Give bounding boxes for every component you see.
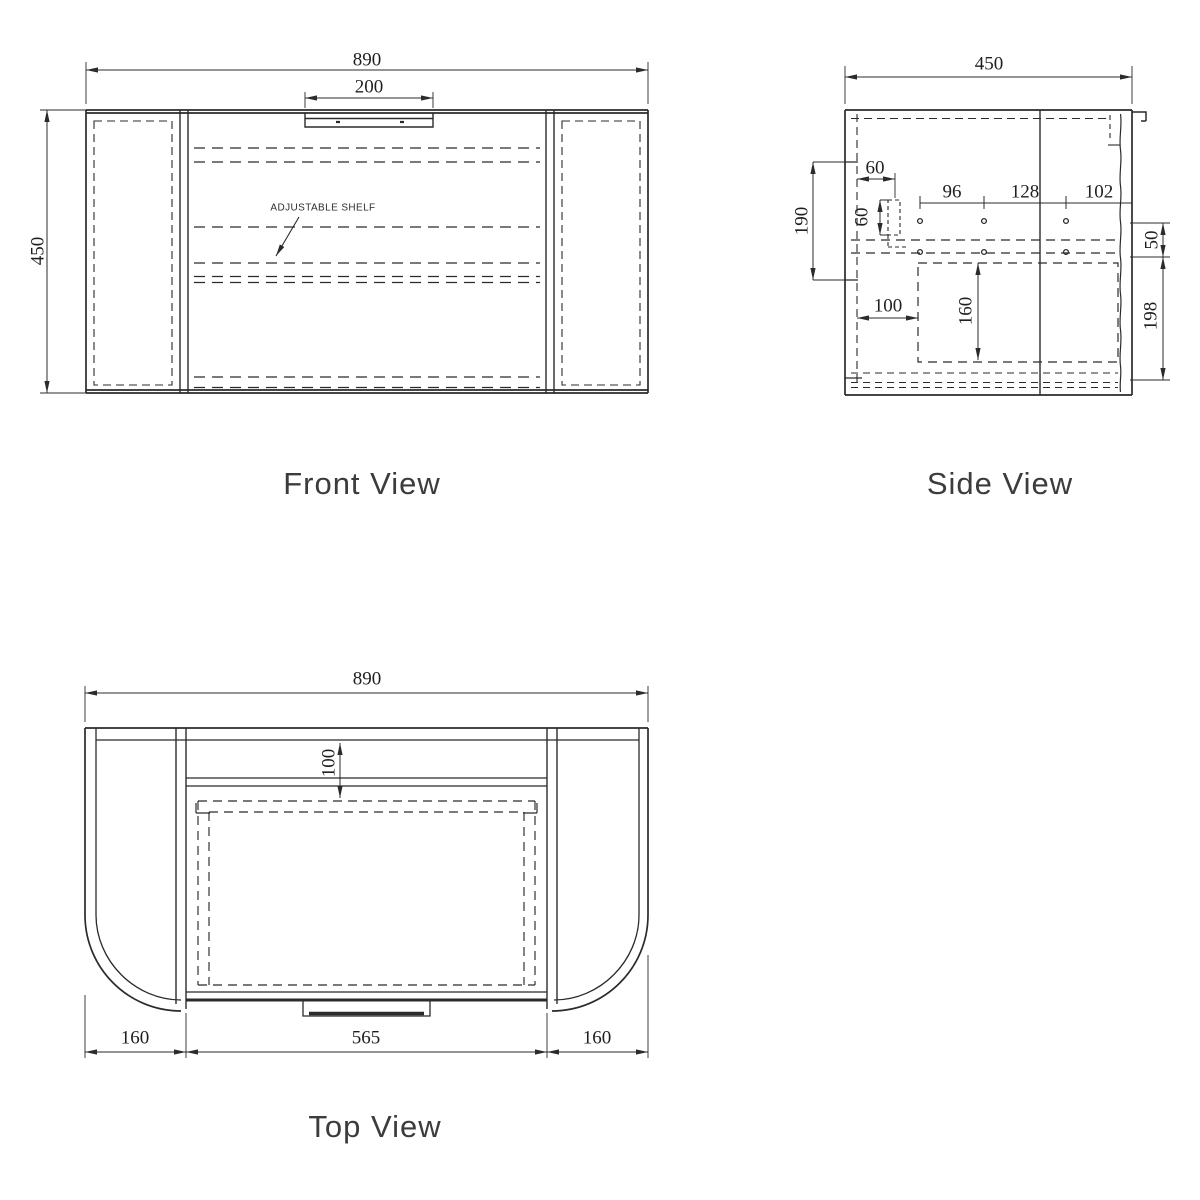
- front-view-linework: [40, 62, 648, 393]
- dim-side-overall-depth: 450: [975, 55, 1004, 74]
- dim-side-hinge-offset-v: 60: [853, 208, 872, 227]
- dim-top-overall-width: 890: [353, 670, 382, 689]
- top-view-linework: [85, 686, 648, 1058]
- dim-side-lower-gap-198: 198: [1142, 302, 1161, 331]
- drawing-canvas: [0, 0, 1200, 1200]
- top-view-title: Top View: [308, 1109, 441, 1145]
- side-view-title: Side View: [927, 466, 1073, 502]
- dim-side-hole-pitch-102: 102: [1085, 183, 1114, 202]
- dim-side-drawer-inset-100: 100: [874, 297, 903, 316]
- dim-side-row-gap-50: 50: [1143, 231, 1162, 250]
- front-view-title: Front View: [283, 466, 441, 502]
- dim-top-right-wing-160: 160: [583, 1029, 612, 1048]
- dim-front-overall-height: 450: [29, 237, 48, 266]
- dim-front-handle-width: 200: [355, 78, 384, 97]
- dim-top-rail-depth-100: 100: [320, 749, 339, 778]
- technical-drawing-sheet: 890 200 450 ADJUSTABLE SHELF Front View …: [0, 0, 1200, 1200]
- dim-side-hole-pitch-128: 128: [1011, 183, 1040, 202]
- dim-side-hinge-offset-h: 60: [866, 159, 885, 178]
- dim-side-hole-pitch-96: 96: [943, 183, 962, 202]
- dim-side-cutout-height-160: 160: [957, 297, 976, 326]
- dim-top-center-565: 565: [352, 1029, 381, 1048]
- side-view-linework: [813, 66, 1170, 395]
- dim-side-front-zone-190: 190: [793, 207, 812, 236]
- dim-top-left-wing-160: 160: [121, 1029, 150, 1048]
- adjustable-shelf-label: ADJUSTABLE SHELF: [270, 203, 375, 214]
- dim-front-overall-width: 890: [353, 51, 382, 70]
